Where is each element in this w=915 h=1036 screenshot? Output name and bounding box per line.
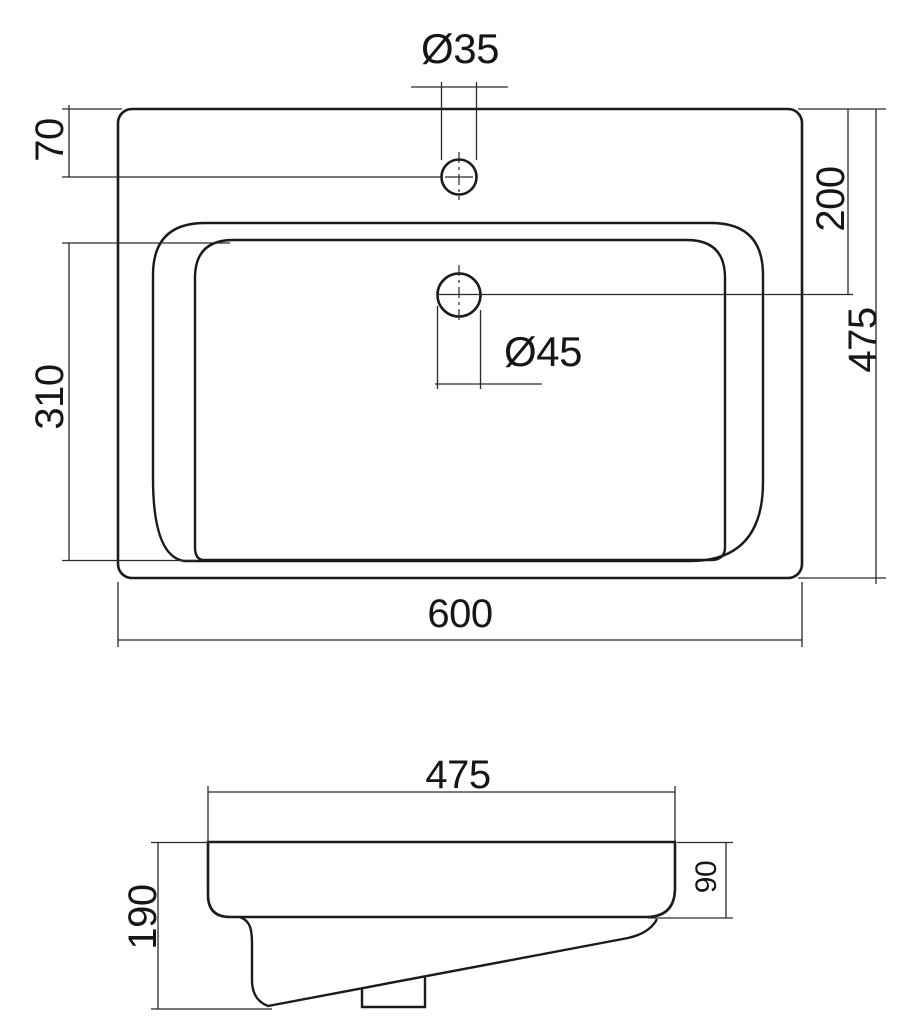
dim90-label: 90 [690, 861, 723, 893]
side-drain-stub [362, 976, 425, 1007]
drawing-canvas: Ø35 Ø45 70 310 200 475 600 [0, 0, 915, 1036]
drain-dia-label: Ø45 [504, 328, 582, 375]
dim70-label: 70 [28, 118, 72, 162]
technical-drawing-svg: Ø35 Ø45 70 310 200 475 600 [0, 0, 915, 1036]
top-view: Ø35 Ø45 70 310 200 475 600 [28, 25, 886, 647]
side-view: 475 190 90 [121, 753, 733, 1009]
side-bowl-profile [240, 917, 657, 1006]
dim200-label: 200 [809, 166, 853, 231]
side-rim-profile [208, 842, 675, 917]
sink-rim-outline [118, 109, 802, 578]
basin-inner-outline [195, 240, 725, 560]
dim310-label: 310 [28, 364, 72, 429]
dim600-label: 600 [427, 592, 492, 636]
faucet-dia-label: Ø35 [421, 25, 499, 72]
dim190-label: 190 [121, 884, 165, 949]
dim475top-label: 475 [841, 307, 885, 372]
dim475side-label: 475 [425, 753, 490, 797]
